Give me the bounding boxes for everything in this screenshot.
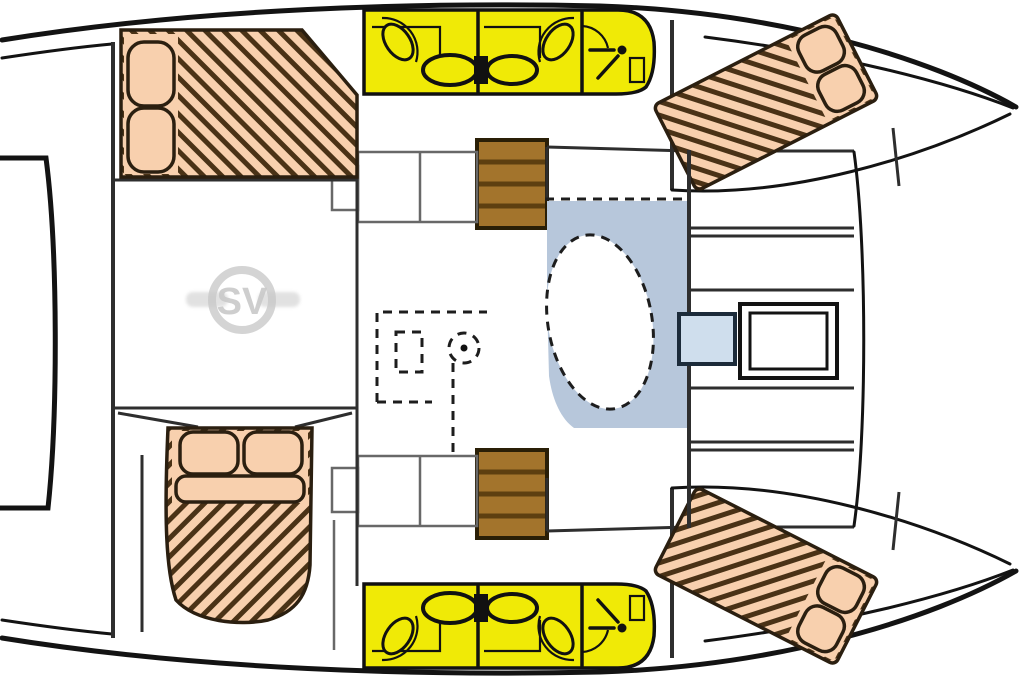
watermark-text-right (258, 292, 300, 307)
saloon-door (679, 314, 735, 364)
floor-plan-canvas: SV (0, 0, 1024, 680)
watermark-text-left (186, 292, 228, 307)
pillow (128, 108, 174, 172)
pillow (180, 432, 238, 474)
blanket-roll (176, 476, 304, 502)
pillow (128, 42, 174, 106)
dinette-area (534, 199, 688, 428)
catamaran-floor-plan: SV (0, 0, 1024, 680)
cockpit-table (740, 304, 837, 378)
pillow (244, 432, 302, 474)
forward-berth (121, 30, 357, 177)
